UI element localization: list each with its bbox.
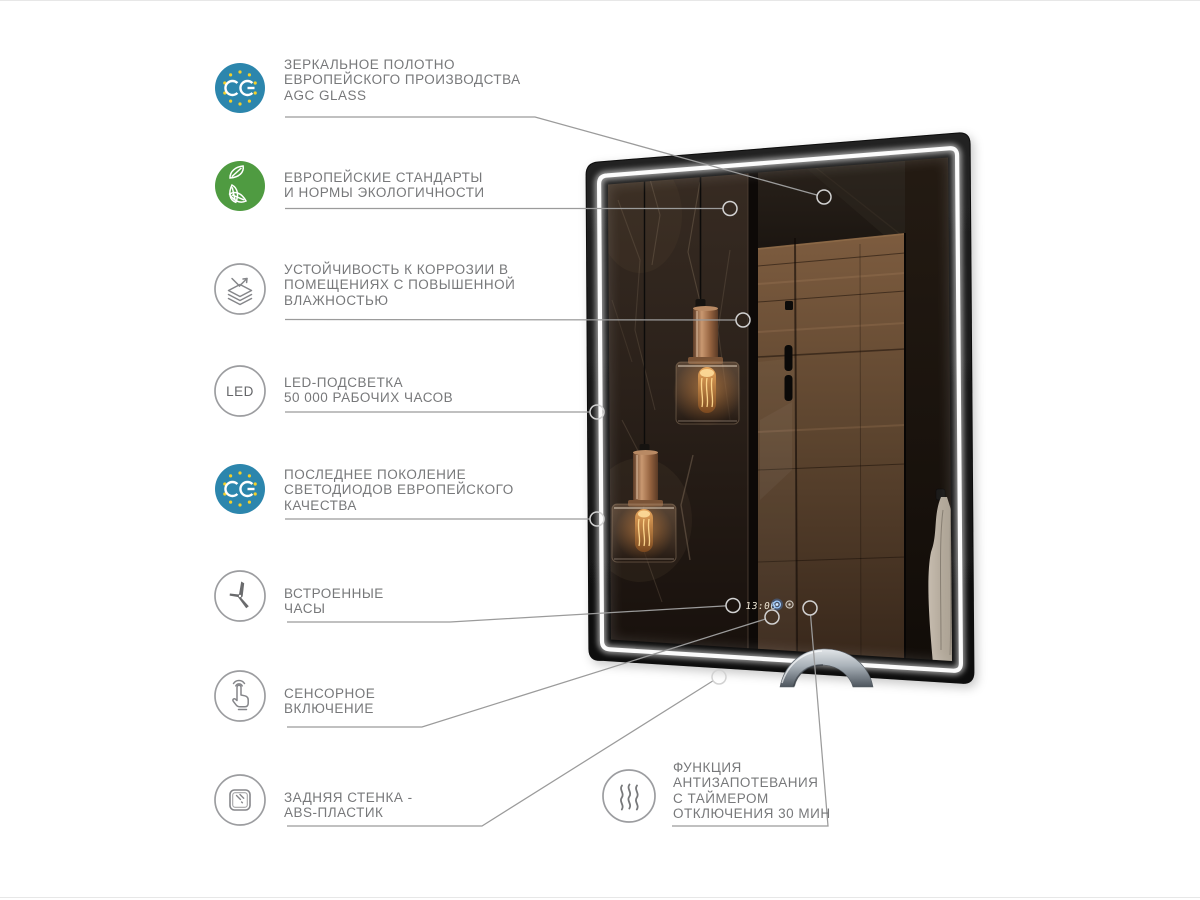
- ce-mark-icon: [214, 463, 266, 520]
- ce-mark-icon: [214, 62, 266, 119]
- page-top-edge: [0, 0, 1200, 1]
- callout-line-corrosion: [285, 320, 736, 321]
- feature-led-generation: ПОСЛЕДНЕЕ ПОКОЛЕНИЕ СВЕТОДИОДОВ ЕВРОПЕЙС…: [284, 467, 514, 513]
- layers-corrosion-icon: [214, 263, 266, 320]
- feature-mirror-glass: ЗЕРКАЛЬНОЕ ПОЛОТНО ЕВРОПЕЙСКОГО ПРОИЗВОД…: [284, 57, 521, 103]
- heat-waves-icon: [601, 768, 657, 829]
- power-touch-button: [771, 599, 783, 611]
- feature-touch-switch: СЕНСОРНОЕ ВКЛЮЧЕНИЕ: [284, 686, 375, 717]
- feature-led-backlight: LED-ПОДСВЕТКА 50 000 РАБОЧИХ ЧАСОВ: [284, 375, 453, 406]
- callout-ring-backpanel: [712, 670, 726, 684]
- svg-text:LED: LED: [226, 384, 254, 399]
- feature-back-panel: ЗАДНЯЯ СТЕНКА - ABS-ПЛАСТИК: [284, 790, 413, 821]
- feature-eco-standards: ЕВРОПЕЙСКИЕ СТАНДАРТЫ И НОРМЫ ЭКОЛОГИЧНО…: [284, 170, 485, 201]
- eco-leaves-icon: [214, 160, 266, 217]
- antifog-touch-button: [786, 601, 793, 608]
- feature-corrosion: УСТОЙЧИВОСТЬ К КОРРОЗИИ В ПОМЕЩЕНИЯХ С П…: [284, 262, 515, 308]
- back-panel-icon: [214, 774, 266, 831]
- led-text-icon: LED: [214, 365, 266, 422]
- page-bottom-edge: [0, 897, 1200, 898]
- infographic-canvas: 13:06: [0, 0, 1200, 900]
- mirror-reflection-scene: 13:06: [588, 148, 961, 673]
- wall-recess-edge: [748, 148, 758, 673]
- touch-icon: [214, 670, 266, 727]
- feature-built-in-clock: ВСТРОЕННЫЕ ЧАСЫ: [284, 586, 384, 617]
- mirror-photo: 13:06: [0, 0, 1200, 900]
- clock-icon: [214, 570, 266, 627]
- feature-antifog: ФУНКЦИЯ АНТИЗАПОТЕВАНИЯ С ТАЙМЕРОМ ОТКЛЮ…: [673, 760, 831, 821]
